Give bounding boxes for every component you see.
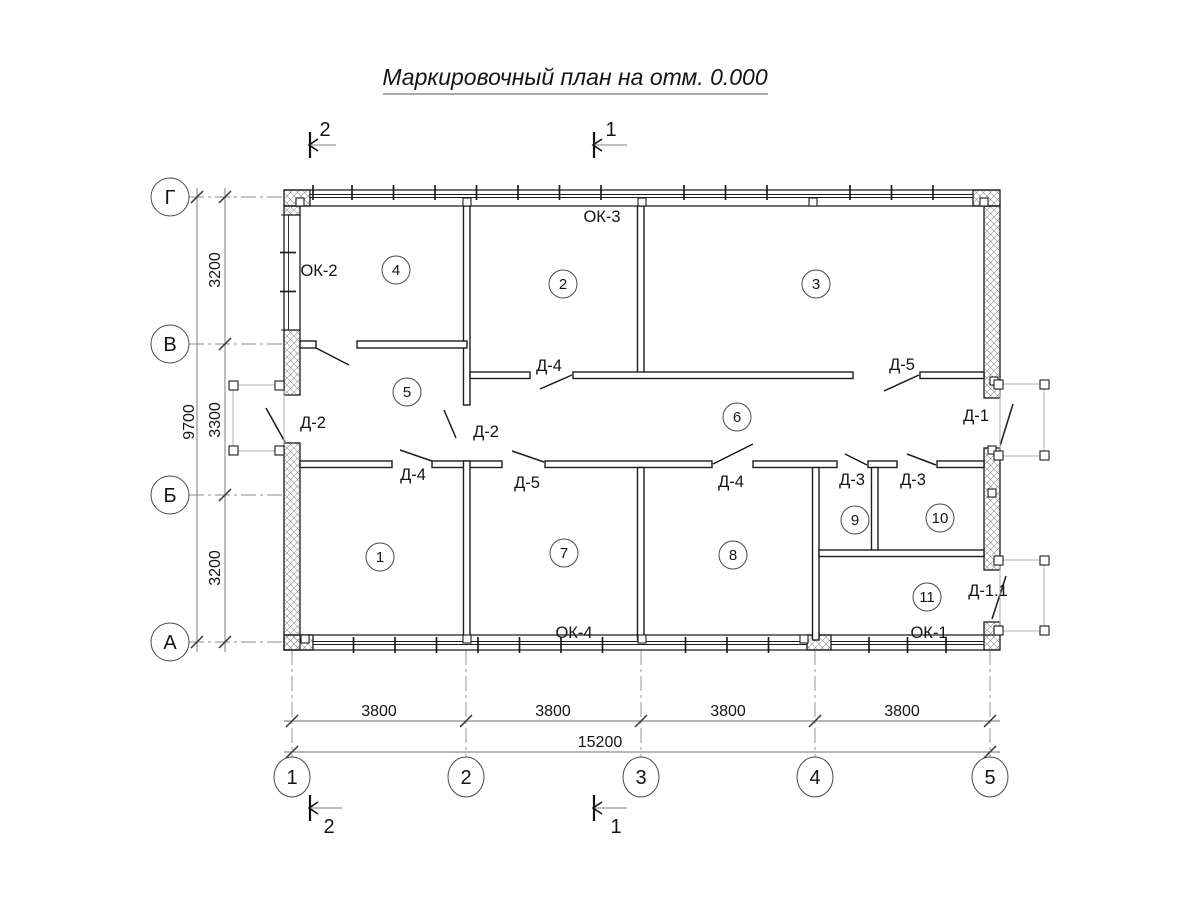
porch-post — [994, 380, 1003, 389]
dim-value: 3200 — [207, 550, 224, 586]
dim-value: 3800 — [361, 703, 397, 720]
partition-wall — [464, 206, 471, 405]
section-number: 1 — [605, 119, 616, 141]
window-mark: ОК-1 — [910, 624, 947, 642]
dim-value: 3800 — [535, 703, 571, 720]
porch-post — [1040, 451, 1049, 460]
drawing-sheet: Маркировочный план на отм. 0.000 — [0, 0, 1200, 900]
interior-walls — [300, 206, 984, 640]
jamb-square — [463, 198, 471, 206]
window-mark: ОК-2 — [300, 262, 337, 280]
porch-post — [229, 446, 238, 455]
door-mark: Д-5 — [514, 474, 540, 492]
partition-wall — [357, 341, 467, 348]
axis-label: 5 — [984, 767, 995, 789]
dim-value: 3800 — [884, 703, 920, 720]
partition-wall — [872, 468, 879, 554]
dim-value: 3200 — [207, 252, 224, 288]
room-number: 2 — [559, 276, 567, 293]
door-mark: Д-3 — [839, 471, 865, 489]
room-number: 5 — [403, 384, 411, 401]
room-number: 10 — [932, 510, 949, 527]
jamb-square — [809, 198, 817, 206]
room-number: 3 — [812, 276, 820, 293]
porch-post — [1040, 380, 1049, 389]
porch-post — [275, 381, 284, 390]
door-mark: Д-5 — [889, 356, 915, 374]
door-mark: Д-4 — [400, 466, 426, 484]
partition-wall — [813, 468, 820, 641]
jamb-square — [800, 635, 808, 643]
door-mark: Д-2 — [473, 423, 499, 441]
section-number: 2 — [323, 816, 334, 838]
porch-outline — [233, 385, 284, 451]
door-leaf-d4 — [540, 375, 572, 389]
door-mark: Д-1.1 — [968, 582, 1008, 600]
jamb-square — [638, 198, 646, 206]
jamb-square — [301, 635, 309, 643]
door-mark: Д-1 — [963, 407, 989, 425]
window-mark: ОК-4 — [555, 624, 592, 642]
partition-wall — [753, 461, 837, 468]
room-number: 11 — [919, 589, 935, 606]
door-mark: Д-4 — [536, 357, 562, 375]
door-mark: Д-4 — [718, 473, 744, 491]
partition-wall — [638, 468, 645, 641]
axis-label: 4 — [809, 767, 820, 789]
element-marks: Д-2 Д-2 Д-4 Д-4 Д-4 Д-5 Д-5 Д-3 Д-3 Д-1 … — [300, 208, 1008, 642]
room-number: 9 — [851, 512, 859, 529]
partition-wall — [638, 206, 645, 376]
partition-wall — [470, 372, 530, 379]
section-number: 2 — [319, 119, 330, 141]
jamb-square — [638, 635, 646, 643]
room-number: 8 — [729, 547, 737, 564]
partition-wall — [573, 372, 853, 379]
wall-pier — [284, 206, 300, 215]
porch-post — [1040, 556, 1049, 565]
porch-post — [229, 381, 238, 390]
porch-post — [1040, 626, 1049, 635]
wall-pier — [284, 443, 300, 650]
porch-post — [994, 626, 1003, 635]
door-mark: Д-2 — [300, 414, 326, 432]
column-axis-markers: 1 2 3 4 5 — [274, 757, 1008, 797]
axis-label: 3 — [635, 767, 646, 789]
wall-pier — [984, 206, 1000, 398]
partition-wall — [545, 461, 712, 468]
window-mark: ОК-3 — [583, 208, 620, 226]
drawing-title: Маркировочный план на отм. 0.000 — [382, 64, 767, 90]
door-leaf-d3 — [907, 454, 936, 465]
partition-wall — [819, 550, 984, 557]
door-leaf-d2-interior — [444, 410, 456, 438]
door-mark: Д-3 — [900, 471, 926, 489]
door-leaves — [316, 348, 936, 465]
porch-post — [275, 446, 284, 455]
partition-wall — [937, 461, 984, 468]
axis-label: А — [163, 632, 177, 654]
jamb-square — [296, 198, 304, 206]
axis-label: 2 — [460, 767, 471, 789]
partition-wall — [464, 461, 471, 640]
room-number: 4 — [392, 262, 400, 279]
dim-total: 15200 — [578, 734, 623, 751]
partition-wall — [300, 341, 316, 348]
door-leaf-d1 — [1000, 404, 1013, 446]
dim-value: 3800 — [710, 703, 746, 720]
door-leaf-d5 — [884, 375, 919, 391]
dim-value: 3300 — [207, 402, 224, 438]
floor-plan-svg: Маркировочный план на отм. 0.000 — [0, 0, 1200, 900]
porch-post — [994, 556, 1003, 565]
axis-label: Г — [165, 187, 176, 209]
room-number: 1 — [376, 549, 384, 566]
axis-label: Б — [163, 485, 176, 507]
wall-pier — [284, 330, 300, 395]
porch-post — [994, 451, 1003, 460]
partition-wall — [868, 461, 897, 468]
section-number: 1 — [610, 816, 621, 838]
dim-total: 9700 — [181, 404, 198, 440]
axis-label: В — [163, 334, 176, 356]
jamb-square — [980, 198, 988, 206]
door-leaf — [316, 348, 349, 365]
door-leaf-d3 — [845, 454, 867, 465]
door-leaf-d4 — [400, 450, 432, 461]
door-leaf-d5 — [512, 451, 544, 462]
axis-label: 1 — [286, 767, 297, 789]
wall-pier — [984, 448, 1000, 570]
jamb-square — [463, 635, 471, 643]
door-leaf-d2-exterior — [266, 408, 285, 442]
door-leaf-d4 — [713, 444, 753, 464]
partition-wall — [300, 461, 392, 468]
jamb-square — [988, 489, 996, 497]
room-number: 7 — [560, 545, 568, 562]
room-number: 6 — [733, 409, 741, 426]
axis-lines — [189, 197, 990, 757]
porch-outline — [1000, 384, 1044, 456]
partition-wall — [920, 372, 984, 379]
